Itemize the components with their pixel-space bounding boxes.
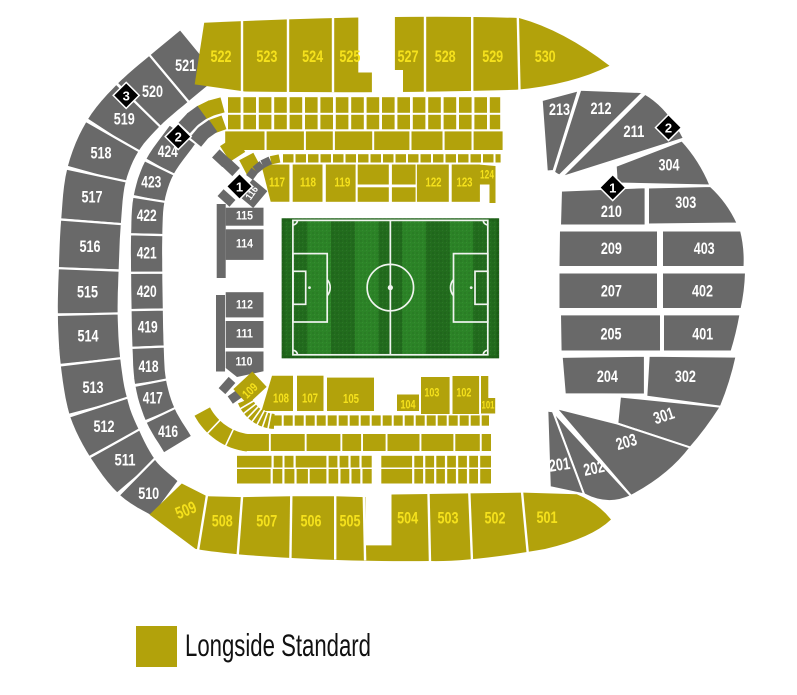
svg-text:123: 123 (457, 174, 473, 189)
svg-text:512: 512 (94, 417, 115, 436)
svg-text:1: 1 (609, 181, 616, 196)
svg-text:302: 302 (675, 367, 696, 386)
svg-text:102: 102 (456, 386, 471, 400)
svg-text:110: 110 (236, 357, 253, 369)
svg-text:122: 122 (426, 174, 442, 189)
svg-text:107: 107 (302, 391, 318, 406)
svg-text:119: 119 (334, 174, 350, 189)
svg-text:423: 423 (141, 174, 161, 192)
svg-text:503: 503 (438, 509, 459, 528)
svg-text:508: 508 (212, 512, 233, 531)
svg-text:501: 501 (537, 508, 558, 527)
svg-text:402: 402 (692, 282, 713, 301)
svg-text:104: 104 (401, 397, 416, 411)
svg-text:530: 530 (535, 47, 556, 66)
svg-text:514: 514 (78, 327, 99, 346)
svg-text:303: 303 (675, 193, 696, 212)
svg-text:522: 522 (211, 47, 232, 66)
svg-text:1: 1 (236, 179, 243, 194)
svg-text:521: 521 (175, 56, 196, 75)
svg-text:419: 419 (138, 318, 158, 336)
svg-text:520: 520 (142, 82, 163, 101)
svg-text:115: 115 (236, 211, 254, 223)
svg-text:2: 2 (665, 121, 672, 136)
svg-text:510: 510 (138, 484, 159, 503)
svg-text:201: 201 (548, 454, 571, 476)
svg-text:418: 418 (139, 358, 159, 376)
svg-text:527: 527 (398, 47, 419, 66)
svg-text:105: 105 (343, 391, 359, 406)
svg-text:523: 523 (256, 47, 277, 66)
svg-text:529: 529 (482, 47, 503, 66)
svg-text:111: 111 (236, 328, 254, 340)
svg-text:528: 528 (435, 47, 456, 66)
svg-text:Longside Standard: Longside Standard (185, 627, 371, 663)
svg-text:505: 505 (340, 512, 361, 531)
svg-text:210: 210 (601, 202, 622, 221)
svg-text:420: 420 (137, 283, 157, 301)
svg-text:124: 124 (480, 170, 494, 182)
svg-text:519: 519 (114, 110, 135, 129)
svg-text:209: 209 (601, 239, 622, 258)
svg-text:506: 506 (301, 512, 322, 531)
svg-text:207: 207 (601, 282, 622, 301)
svg-text:204: 204 (597, 367, 618, 386)
svg-text:504: 504 (397, 509, 418, 528)
svg-text:524: 524 (302, 47, 323, 66)
svg-text:516: 516 (80, 237, 101, 256)
svg-text:422: 422 (137, 207, 157, 225)
svg-text:417: 417 (143, 389, 163, 407)
svg-text:517: 517 (82, 188, 103, 207)
svg-text:421: 421 (137, 244, 157, 262)
svg-text:525: 525 (339, 47, 360, 66)
svg-text:212: 212 (591, 99, 612, 118)
svg-text:518: 518 (91, 144, 112, 163)
svg-text:515: 515 (77, 283, 98, 302)
svg-text:2: 2 (175, 130, 182, 145)
svg-text:403: 403 (694, 239, 715, 258)
svg-text:511: 511 (115, 451, 136, 470)
svg-text:101: 101 (482, 400, 495, 412)
svg-text:304: 304 (659, 155, 680, 174)
svg-text:401: 401 (692, 325, 713, 344)
svg-text:507: 507 (256, 512, 277, 531)
svg-text:502: 502 (485, 509, 506, 528)
svg-text:3: 3 (123, 88, 130, 103)
svg-text:213: 213 (549, 100, 570, 119)
svg-text:513: 513 (83, 378, 104, 397)
svg-text:205: 205 (601, 325, 622, 344)
svg-text:103: 103 (424, 386, 439, 400)
svg-text:117: 117 (269, 174, 285, 189)
svg-text:114: 114 (236, 239, 254, 251)
svg-text:108: 108 (273, 391, 289, 406)
svg-text:112: 112 (236, 299, 253, 311)
svg-text:416: 416 (158, 423, 178, 441)
svg-text:211: 211 (623, 122, 644, 141)
svg-text:118: 118 (300, 174, 316, 189)
